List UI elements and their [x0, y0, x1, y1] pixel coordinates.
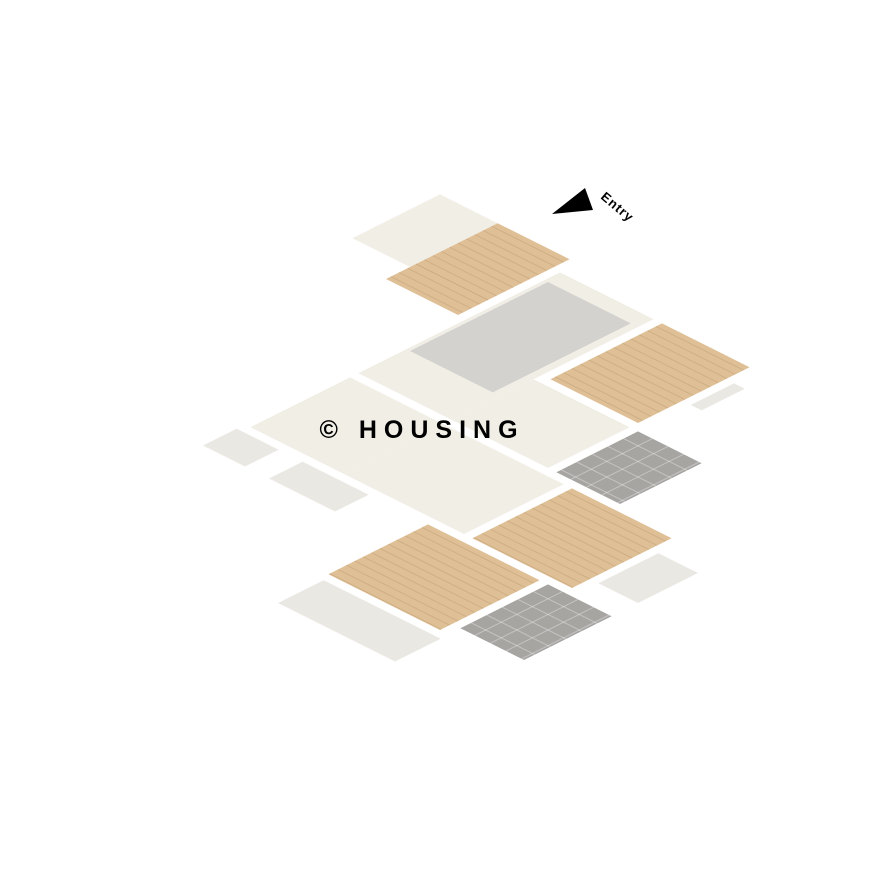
entry-label: Entry	[598, 189, 637, 225]
watermark: © HOUSING	[319, 416, 524, 444]
entry-direction-arrow	[552, 188, 593, 214]
floor-plan-3d-render: Entry © HOUSING	[0, 0, 870, 870]
floor-plan-svg: Entry © HOUSING	[0, 0, 870, 870]
